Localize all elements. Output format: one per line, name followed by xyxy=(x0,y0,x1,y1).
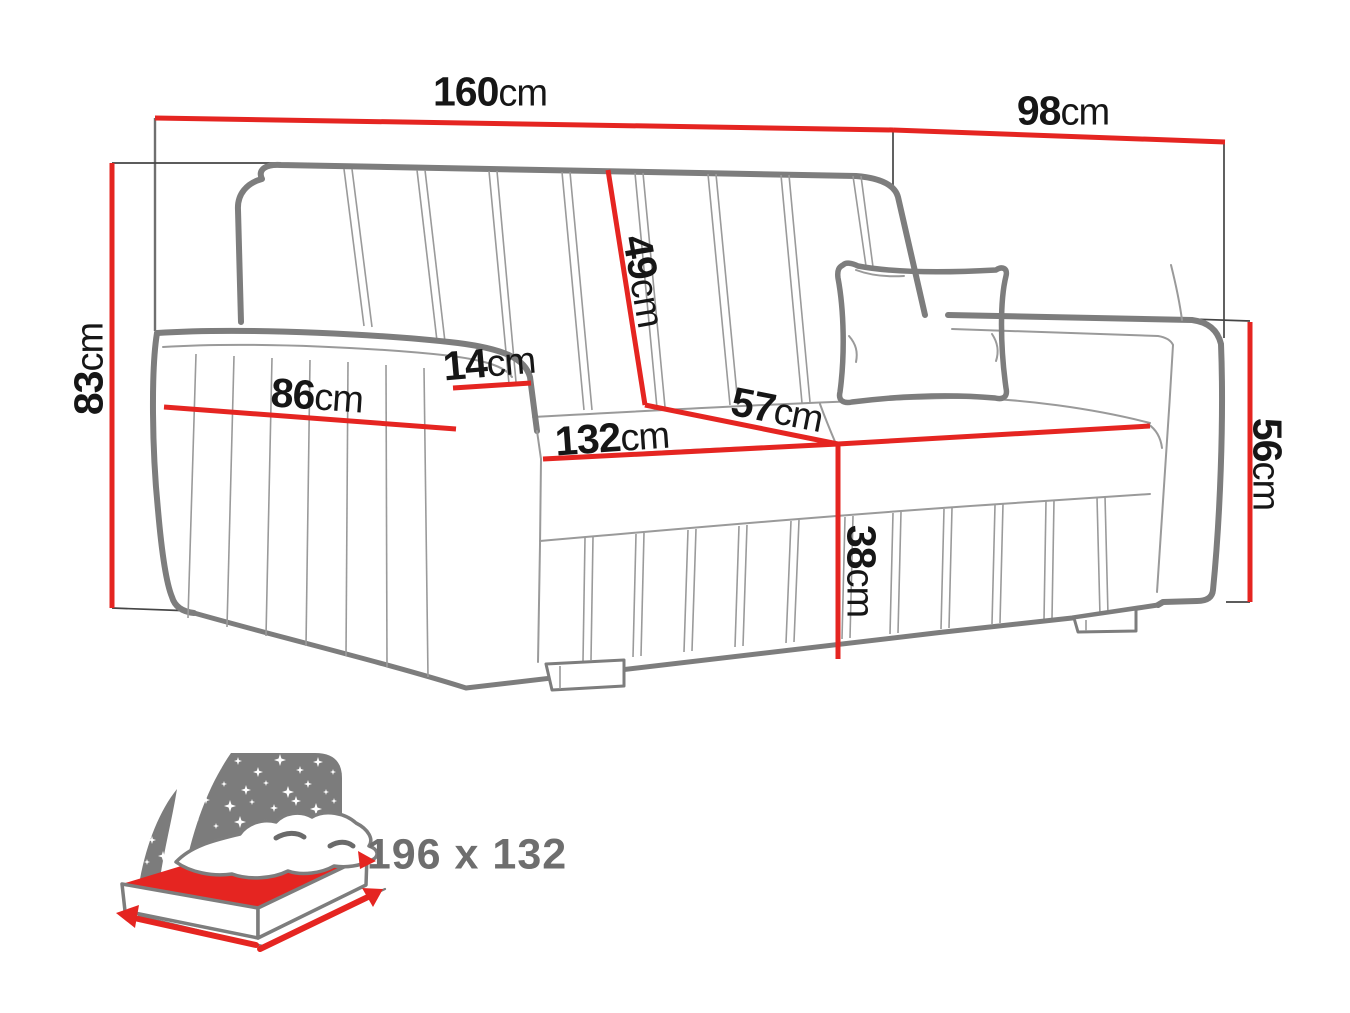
dimension-label-seat-height: 38cm xyxy=(841,525,882,617)
dimension-label-seat-width: 132cm xyxy=(554,414,671,463)
sofa-backrest xyxy=(238,165,925,410)
dimension-label-total-height: 83cm xyxy=(69,323,110,415)
dimension-label-armrest-depth: 86cm xyxy=(270,372,365,419)
sofa-bed-sleeping-area-icon xyxy=(116,753,385,949)
dimension-label-armrest-width: 14cm xyxy=(441,339,536,388)
sofa-seat-and-base xyxy=(194,398,1162,688)
dimension-label-total-width: 160cm xyxy=(433,72,547,113)
dimension-label-armrest-height-right: 56cm xyxy=(1247,418,1288,510)
sofa-dimension-diagram: 160cm 98cm 83cm 49cm 14cm 86cm 132cm 57c… xyxy=(0,0,1350,1013)
witness-lines xyxy=(112,118,1250,611)
sofa-line-drawing xyxy=(0,0,1350,1013)
dimension-label-total-depth: 98cm xyxy=(1017,91,1109,132)
sleeping-area-label: 196 x 132 xyxy=(367,831,567,880)
sofa-pillow xyxy=(838,263,1007,402)
dim-line-front-edge xyxy=(838,426,1150,444)
dim-line-160 xyxy=(155,118,893,130)
